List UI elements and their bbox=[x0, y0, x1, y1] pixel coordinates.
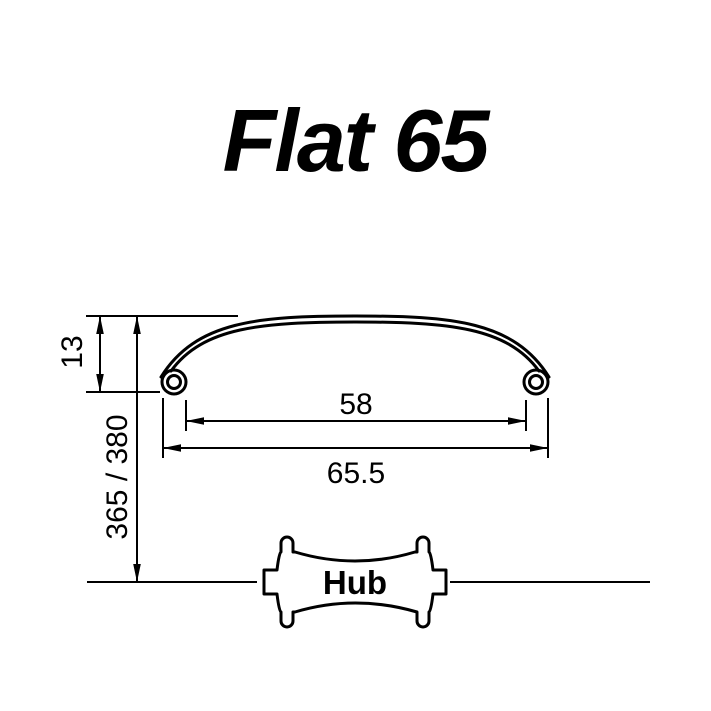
rim-right-rolled-edge-inner bbox=[530, 376, 543, 389]
dimension-inner-width: 58 bbox=[186, 388, 526, 425]
dimension-outer-width: 65.5 bbox=[163, 444, 548, 490]
rim-left-rolled-edge-inner bbox=[168, 376, 181, 389]
rim-technical-drawing: Flat 65 13 bbox=[0, 0, 711, 711]
arrow-up-icon bbox=[96, 316, 104, 334]
rim-left-rolled-edge-outer bbox=[162, 370, 186, 394]
extension-lines bbox=[86, 316, 548, 458]
page-title: Flat 65 bbox=[223, 91, 491, 190]
arrow-left-icon bbox=[186, 417, 204, 425]
diagram-page: Flat 65 13 bbox=[0, 0, 711, 711]
arrow-left-icon bbox=[163, 444, 181, 452]
arrow-right-icon bbox=[508, 417, 526, 425]
dimension-label-inner-width: 58 bbox=[339, 388, 372, 421]
hub-label: Hub bbox=[323, 564, 387, 601]
dimension-label-radius: 365 / 380 bbox=[101, 414, 134, 539]
arrow-down-icon bbox=[133, 564, 141, 582]
dimension-label-outer-width: 65.5 bbox=[327, 457, 385, 490]
rim-outer-arc bbox=[161, 316, 549, 377]
hub: Hub bbox=[264, 537, 446, 627]
arrow-right-icon bbox=[530, 444, 548, 452]
rim-right-rolled-edge-outer bbox=[524, 370, 548, 394]
arrow-down-icon bbox=[96, 374, 104, 392]
dimension-radius: 365 / 380 bbox=[101, 316, 141, 582]
dimension-label-depth: 13 bbox=[56, 335, 89, 368]
rim-profile bbox=[161, 316, 549, 394]
dimension-depth: 13 bbox=[56, 316, 104, 392]
arrow-up-icon bbox=[133, 316, 141, 334]
